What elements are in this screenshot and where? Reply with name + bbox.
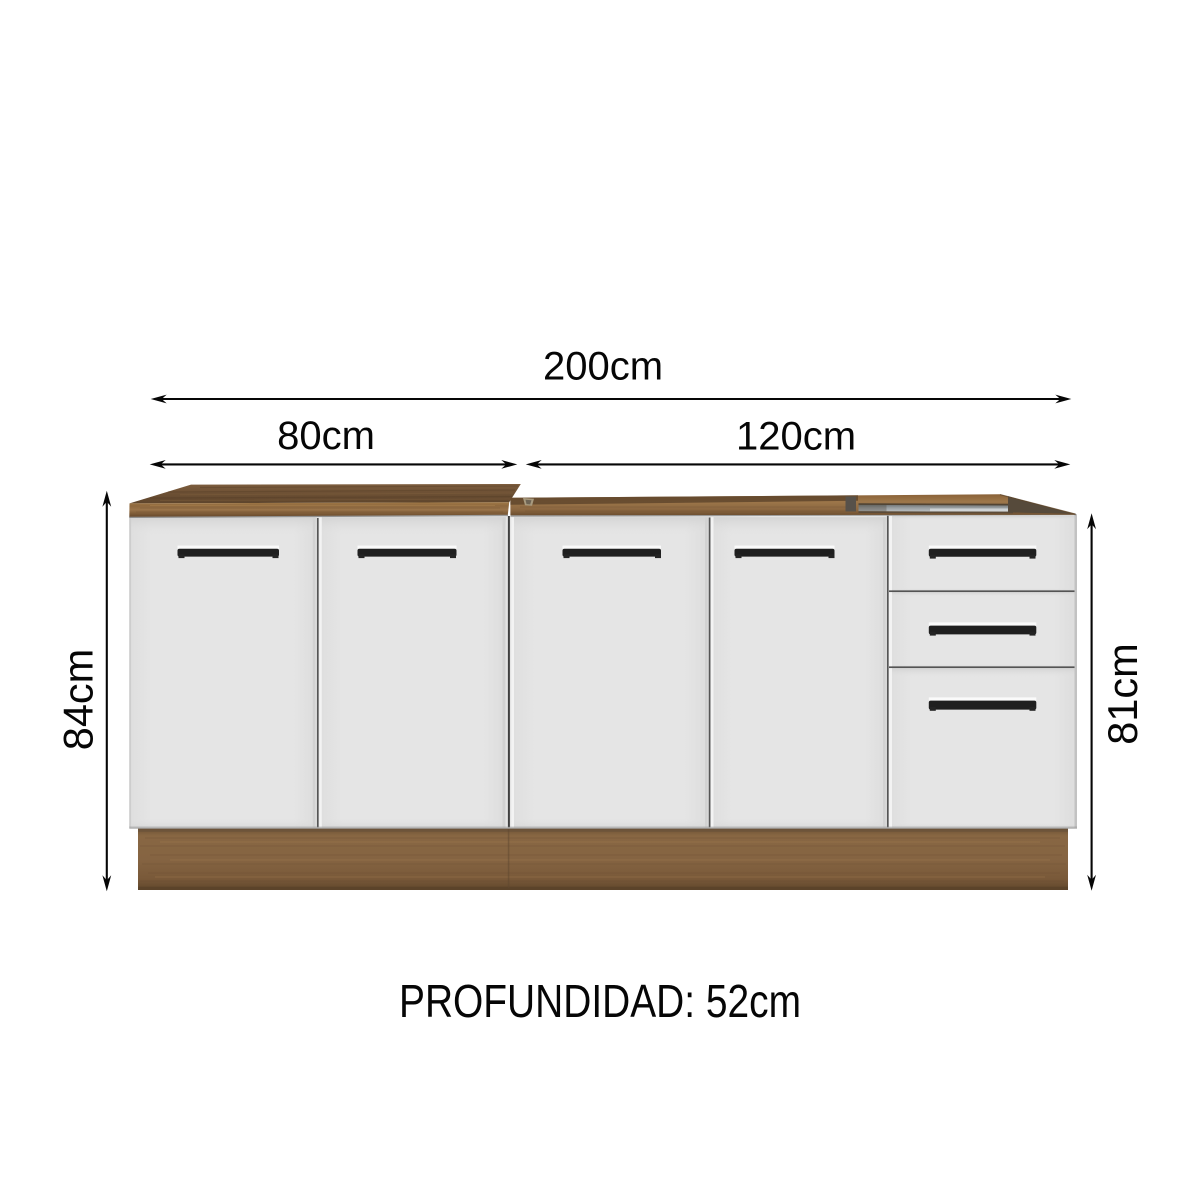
svg-text:80cm: 80cm (277, 414, 375, 458)
svg-text:81cm: 81cm (1099, 643, 1146, 744)
svg-text:PROFUNDIDAD: 52cm: PROFUNDIDAD: 52cm (399, 976, 801, 1028)
svg-text:84cm: 84cm (55, 649, 102, 750)
svg-text:120cm: 120cm (736, 415, 856, 459)
svg-text:200cm: 200cm (543, 345, 663, 389)
